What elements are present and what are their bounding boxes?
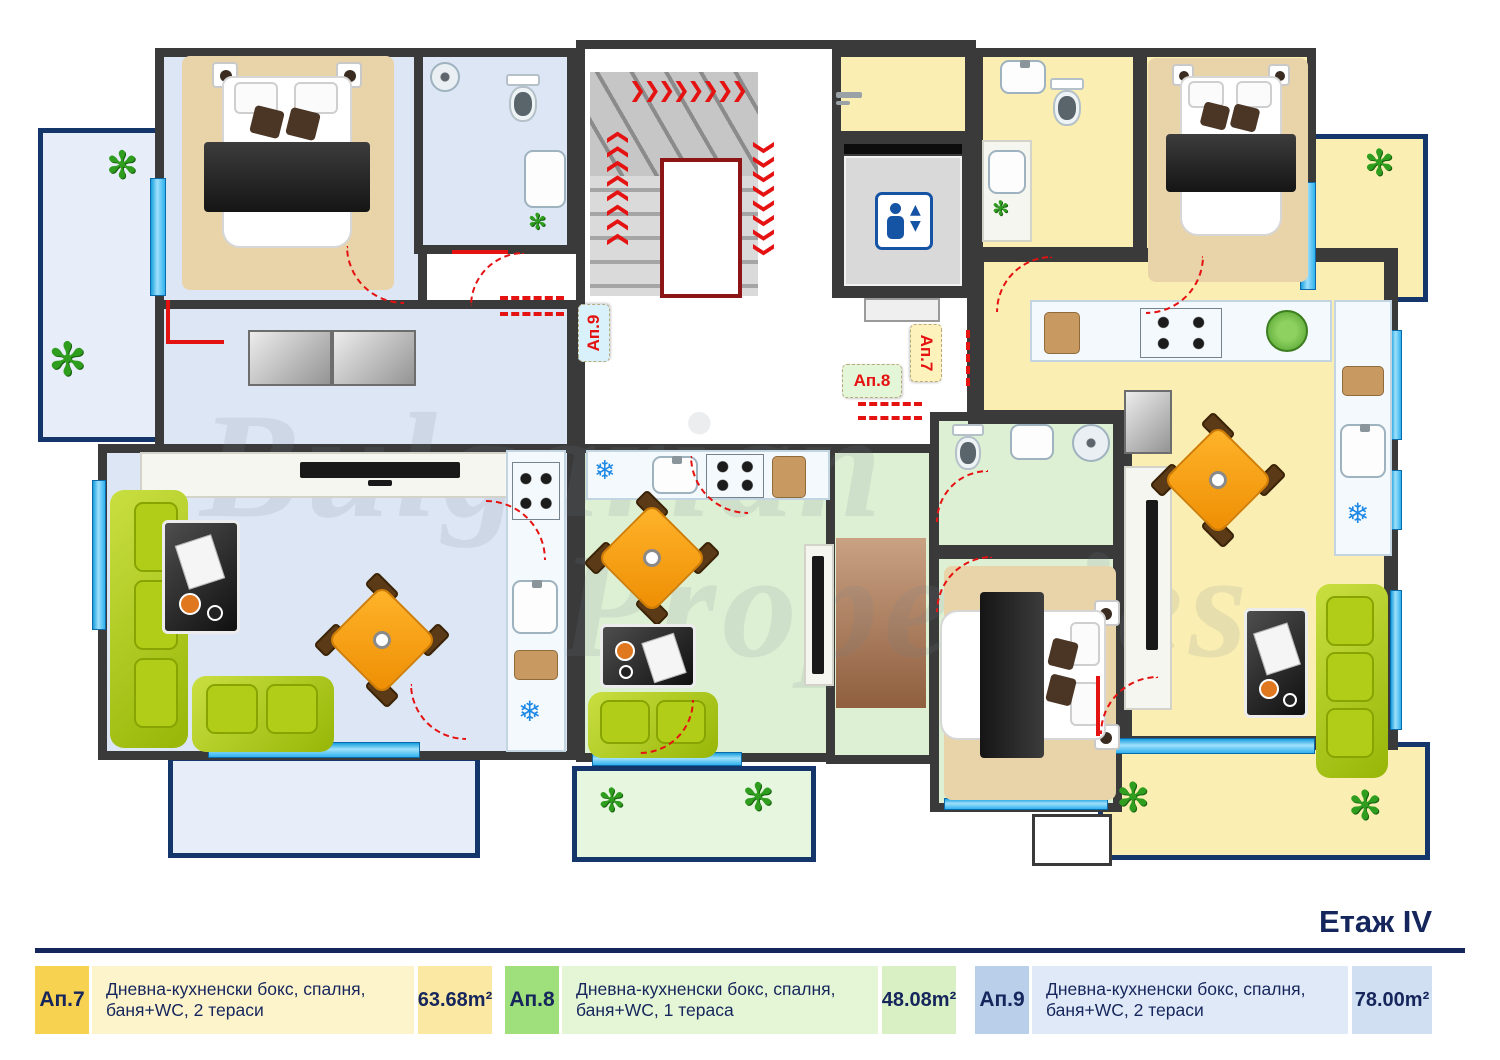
plant-icon: ✻: [1348, 786, 1382, 826]
window: [1390, 590, 1402, 730]
plant-icon: ✻: [528, 212, 546, 234]
ap7-bed: [1172, 64, 1290, 244]
ap8-dining-set: [592, 498, 712, 618]
entry-door-dashed: [500, 296, 564, 300]
shower-icon: [1072, 424, 1110, 462]
legend-ap8-id-label: Ап.8: [509, 988, 554, 1012]
legend-ap8-description-text: Дневна-кухненски бокс, спалня, баня+WC, …: [576, 979, 864, 1020]
faucet-icon: [1360, 424, 1370, 432]
door-jamb: [166, 300, 170, 344]
elevator-step: [864, 298, 940, 322]
plant-icon: ✻: [1364, 146, 1394, 182]
elevator-door-bar: [844, 144, 962, 154]
wall: [968, 410, 1136, 424]
door-jamb: [168, 340, 224, 344]
entry-door-dashed: [500, 312, 564, 316]
tag-ap8-label: Ап.8: [854, 371, 891, 391]
entry-door-dashed: [966, 330, 970, 386]
door-handle-icon: [836, 92, 862, 98]
ap8-toilet: [952, 424, 984, 472]
sink-icon: [512, 580, 558, 634]
legend-ap7-id: Ап.7: [35, 966, 89, 1034]
shower-icon: [430, 62, 460, 92]
toilet-tank: [506, 74, 540, 86]
tag-ap9: Ап.9: [578, 304, 610, 362]
plate-icon: [179, 593, 201, 615]
ap8-bed: [934, 600, 1120, 750]
sofa-seat: [134, 658, 178, 728]
page-title: Етаж IV: [1130, 904, 1432, 940]
legend-ap8-area: 48.08m²: [882, 966, 956, 1034]
window: [1105, 738, 1315, 754]
cup-icon: [207, 605, 223, 621]
plant-icon: ✻: [992, 198, 1009, 218]
plant-icon: ✻: [598, 784, 625, 816]
ap7-sofa: [1316, 584, 1388, 778]
sink-icon: [1340, 424, 1386, 478]
legend-ap9-area: 78.00m²: [1352, 966, 1432, 1034]
blanket: [1166, 134, 1296, 192]
elevator-down-icon: ▼: [910, 221, 921, 232]
legend-ap9-description-text: Дневна-кухненски бокс, спалня, баня+WC, …: [1046, 979, 1334, 1020]
magazine: [641, 633, 686, 683]
legend-ap7-id-label: Ап.7: [39, 988, 84, 1012]
elevator-person-body: [887, 216, 904, 239]
sofa-seat: [1326, 708, 1374, 758]
stairs-right-arrows-icon: ❯❯❯❯❯❯❯❯: [612, 80, 762, 104]
entry-door-dashed: [858, 416, 922, 420]
legend-ap7-description: Дневна-кухненски бокс, спалня, баня+WC, …: [92, 966, 414, 1034]
sink-icon: [988, 150, 1026, 194]
door-jamb: [452, 250, 508, 254]
stairs-down-arrows-icon: ❯❯❯❯❯❯❯❯: [751, 92, 775, 302]
freezer-icon: ❄: [518, 698, 541, 726]
ap9-wardrobe: [332, 330, 416, 386]
legend-ap7-area: 63.68m²: [418, 966, 492, 1034]
entry-door-dashed: [858, 402, 922, 406]
ap7-dining-set: [1158, 420, 1278, 540]
exterior-landing: [1032, 814, 1112, 866]
legend-ap8-id: Ап.8: [505, 966, 559, 1034]
ap7-coffee-table: [1244, 608, 1308, 718]
tag-ap7-label: Ап.7: [916, 335, 936, 372]
legend-ap7-area-value: 63.68m²: [418, 989, 493, 1012]
elevator-icon: ▲ ▼: [875, 192, 933, 250]
elevator-shaft: ▲ ▼: [832, 136, 974, 298]
ap7-bath-sink: [1000, 60, 1046, 94]
blanket: [980, 592, 1044, 758]
elevator-up-icon: ▲: [910, 205, 921, 216]
cutting-board-icon: [1342, 366, 1384, 396]
ap9-sofa: [192, 676, 334, 752]
ap9-terrace-west: [38, 128, 164, 442]
salad-bowl-icon: [1266, 310, 1308, 352]
elevator-person-icon: [890, 203, 901, 214]
plant-icon: ✻: [106, 146, 138, 184]
ap9-tv: [300, 462, 460, 478]
cutting-board-icon: [1044, 312, 1080, 354]
plate-icon: [643, 549, 661, 567]
legend-ap8-description: Дневна-кухненски бокс, спалня, баня+WC, …: [562, 966, 878, 1034]
toilet-tank: [1050, 78, 1084, 90]
ap9-tv-stand: [368, 480, 392, 486]
ap9-bath-sink: [524, 150, 566, 208]
tag-ap8: Ап.8: [842, 364, 902, 398]
ap8-tv: [812, 556, 824, 674]
ap9-dining-set: [322, 580, 442, 700]
cutting-board-icon: [772, 456, 806, 498]
ap8-coffee-table: [600, 624, 696, 688]
ap9-coffee-table: [162, 520, 240, 634]
plate-icon: [373, 631, 391, 649]
elevator-car: ▲ ▼: [844, 156, 962, 286]
window: [150, 178, 166, 296]
stair-opening: [660, 158, 742, 298]
plant-icon: ✻: [742, 778, 774, 816]
cup-icon: [1283, 693, 1297, 707]
divider-rule: [35, 948, 1465, 953]
stairs-up-arrows-icon: ❯❯❯❯❯❯❯❯: [606, 100, 630, 280]
sofa-seat: [1326, 652, 1374, 702]
faucet-icon: [1020, 60, 1030, 68]
sofa-seat: [1326, 596, 1374, 646]
cutting-board-icon: [514, 650, 558, 680]
legend-ap9-id-label: Ап.9: [979, 988, 1024, 1012]
toilet-tank: [952, 424, 984, 436]
legend-ap8-area-value: 48.08m²: [882, 989, 957, 1012]
magazine: [1253, 623, 1301, 676]
floor-plan-page: ❯❯❯❯❯❯❯❯ ❯❯❯❯❯❯❯❯ ❯❯❯❯❯❯❯❯ ▲ ▼ Bulgarian…: [0, 0, 1500, 1060]
plate-icon: [1209, 471, 1227, 489]
plant-icon: ✻: [1116, 778, 1150, 818]
legend-ap9-area-value: 78.00m²: [1355, 989, 1430, 1012]
plate-icon: [1259, 679, 1279, 699]
door-handle-icon: [836, 101, 850, 105]
ap9-bed: [212, 62, 362, 254]
tag-ap9-label: Ап.9: [584, 315, 604, 352]
freezer-icon: ❄: [1346, 500, 1369, 528]
ap7-toilet: [1050, 78, 1084, 128]
blanket: [204, 142, 370, 212]
tag-ap7: Ап.7: [910, 324, 942, 382]
ap8-bath-sink: [1010, 424, 1054, 460]
plant-icon: ✻: [48, 336, 87, 382]
faucet-icon: [532, 580, 542, 588]
ap9-toilet: [506, 74, 540, 124]
plate-icon: [615, 641, 635, 661]
ap9-terrace-south: [168, 756, 480, 858]
cup-icon: [619, 665, 633, 679]
toilet-seat: [1058, 96, 1076, 120]
legend-ap9-description: Дневна-кухненски бокс, спалня, баня+WC, …: [1032, 966, 1348, 1034]
freezer-icon: ❄: [594, 458, 616, 484]
sofa-seat: [206, 684, 258, 734]
magazine: [175, 534, 225, 589]
sofa-seat: [266, 684, 318, 734]
toilet-seat: [514, 92, 532, 116]
ap8-entry-vestibule: [836, 538, 926, 708]
legend-ap9-id: Ап.9: [975, 966, 1029, 1034]
faucet-icon: [672, 456, 682, 464]
ap7-tv: [1146, 500, 1158, 650]
toilet-seat: [960, 442, 976, 464]
window: [92, 480, 106, 630]
ap9-wardrobe: [248, 330, 332, 386]
legend-ap7-description-text: Дневна-кухненски бокс, спалня, баня+WC, …: [106, 979, 400, 1020]
stove-icon: [1140, 308, 1222, 358]
